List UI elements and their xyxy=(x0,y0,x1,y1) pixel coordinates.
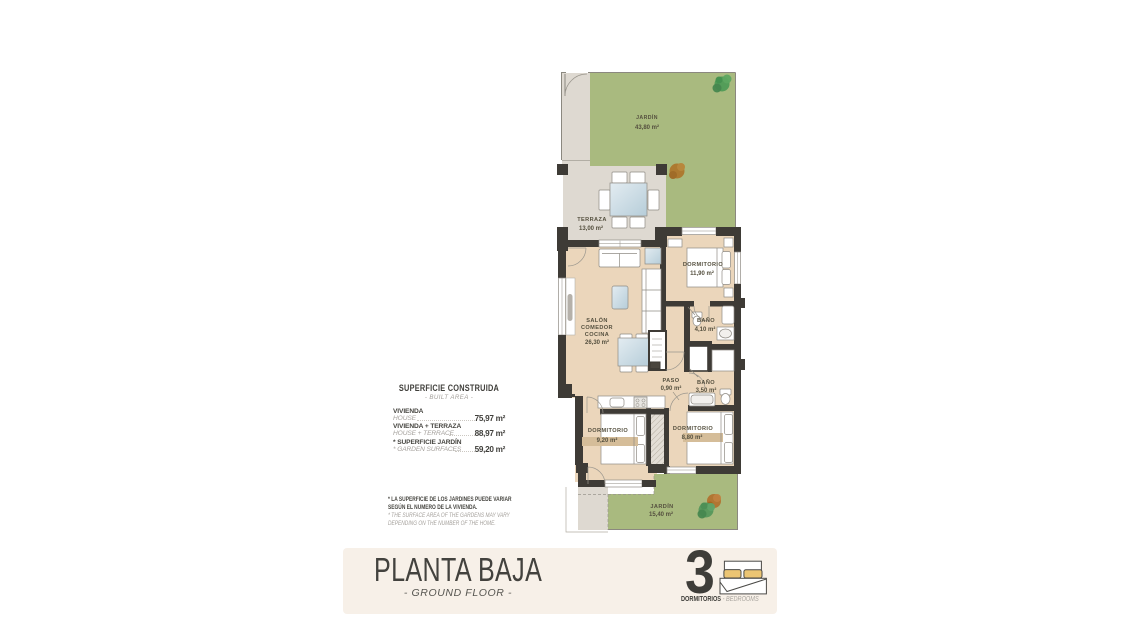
svg-text:13,00 m²: 13,00 m² xyxy=(579,225,603,232)
svg-text:SALÓN: SALÓN xyxy=(586,316,608,324)
svg-text:DORMITORIO: DORMITORIO xyxy=(683,262,724,268)
svg-text:DORMITORIO: DORMITORIO xyxy=(673,426,714,432)
svg-text:PASO: PASO xyxy=(662,378,679,384)
svg-text:DORMITORIO: DORMITORIO xyxy=(588,428,629,434)
svg-text:BAÑO: BAÑO xyxy=(697,317,715,324)
svg-text:TERRAZA: TERRAZA xyxy=(577,217,607,223)
svg-text:43,80 m²: 43,80 m² xyxy=(635,124,659,131)
svg-text:COMEDOR: COMEDOR xyxy=(581,325,613,331)
svg-text:26,30 m²: 26,30 m² xyxy=(585,339,609,346)
svg-text:8,80 m²: 8,80 m² xyxy=(682,434,703,441)
svg-text:JARDÍN: JARDÍN xyxy=(650,502,673,510)
svg-text:COCINA: COCINA xyxy=(585,332,609,338)
svg-text:4,10 m²: 4,10 m² xyxy=(695,326,716,333)
svg-text:11,90 m²: 11,90 m² xyxy=(690,270,714,277)
svg-text:9,20 m²: 9,20 m² xyxy=(597,437,618,444)
svg-text:3,50 m²: 3,50 m² xyxy=(696,387,717,394)
svg-text:BAÑO: BAÑO xyxy=(697,379,715,386)
svg-text:15,40 m²: 15,40 m² xyxy=(649,511,673,518)
svg-text:JARDÍN: JARDÍN xyxy=(636,113,658,121)
svg-text:0,90 m²: 0,90 m² xyxy=(661,385,682,392)
